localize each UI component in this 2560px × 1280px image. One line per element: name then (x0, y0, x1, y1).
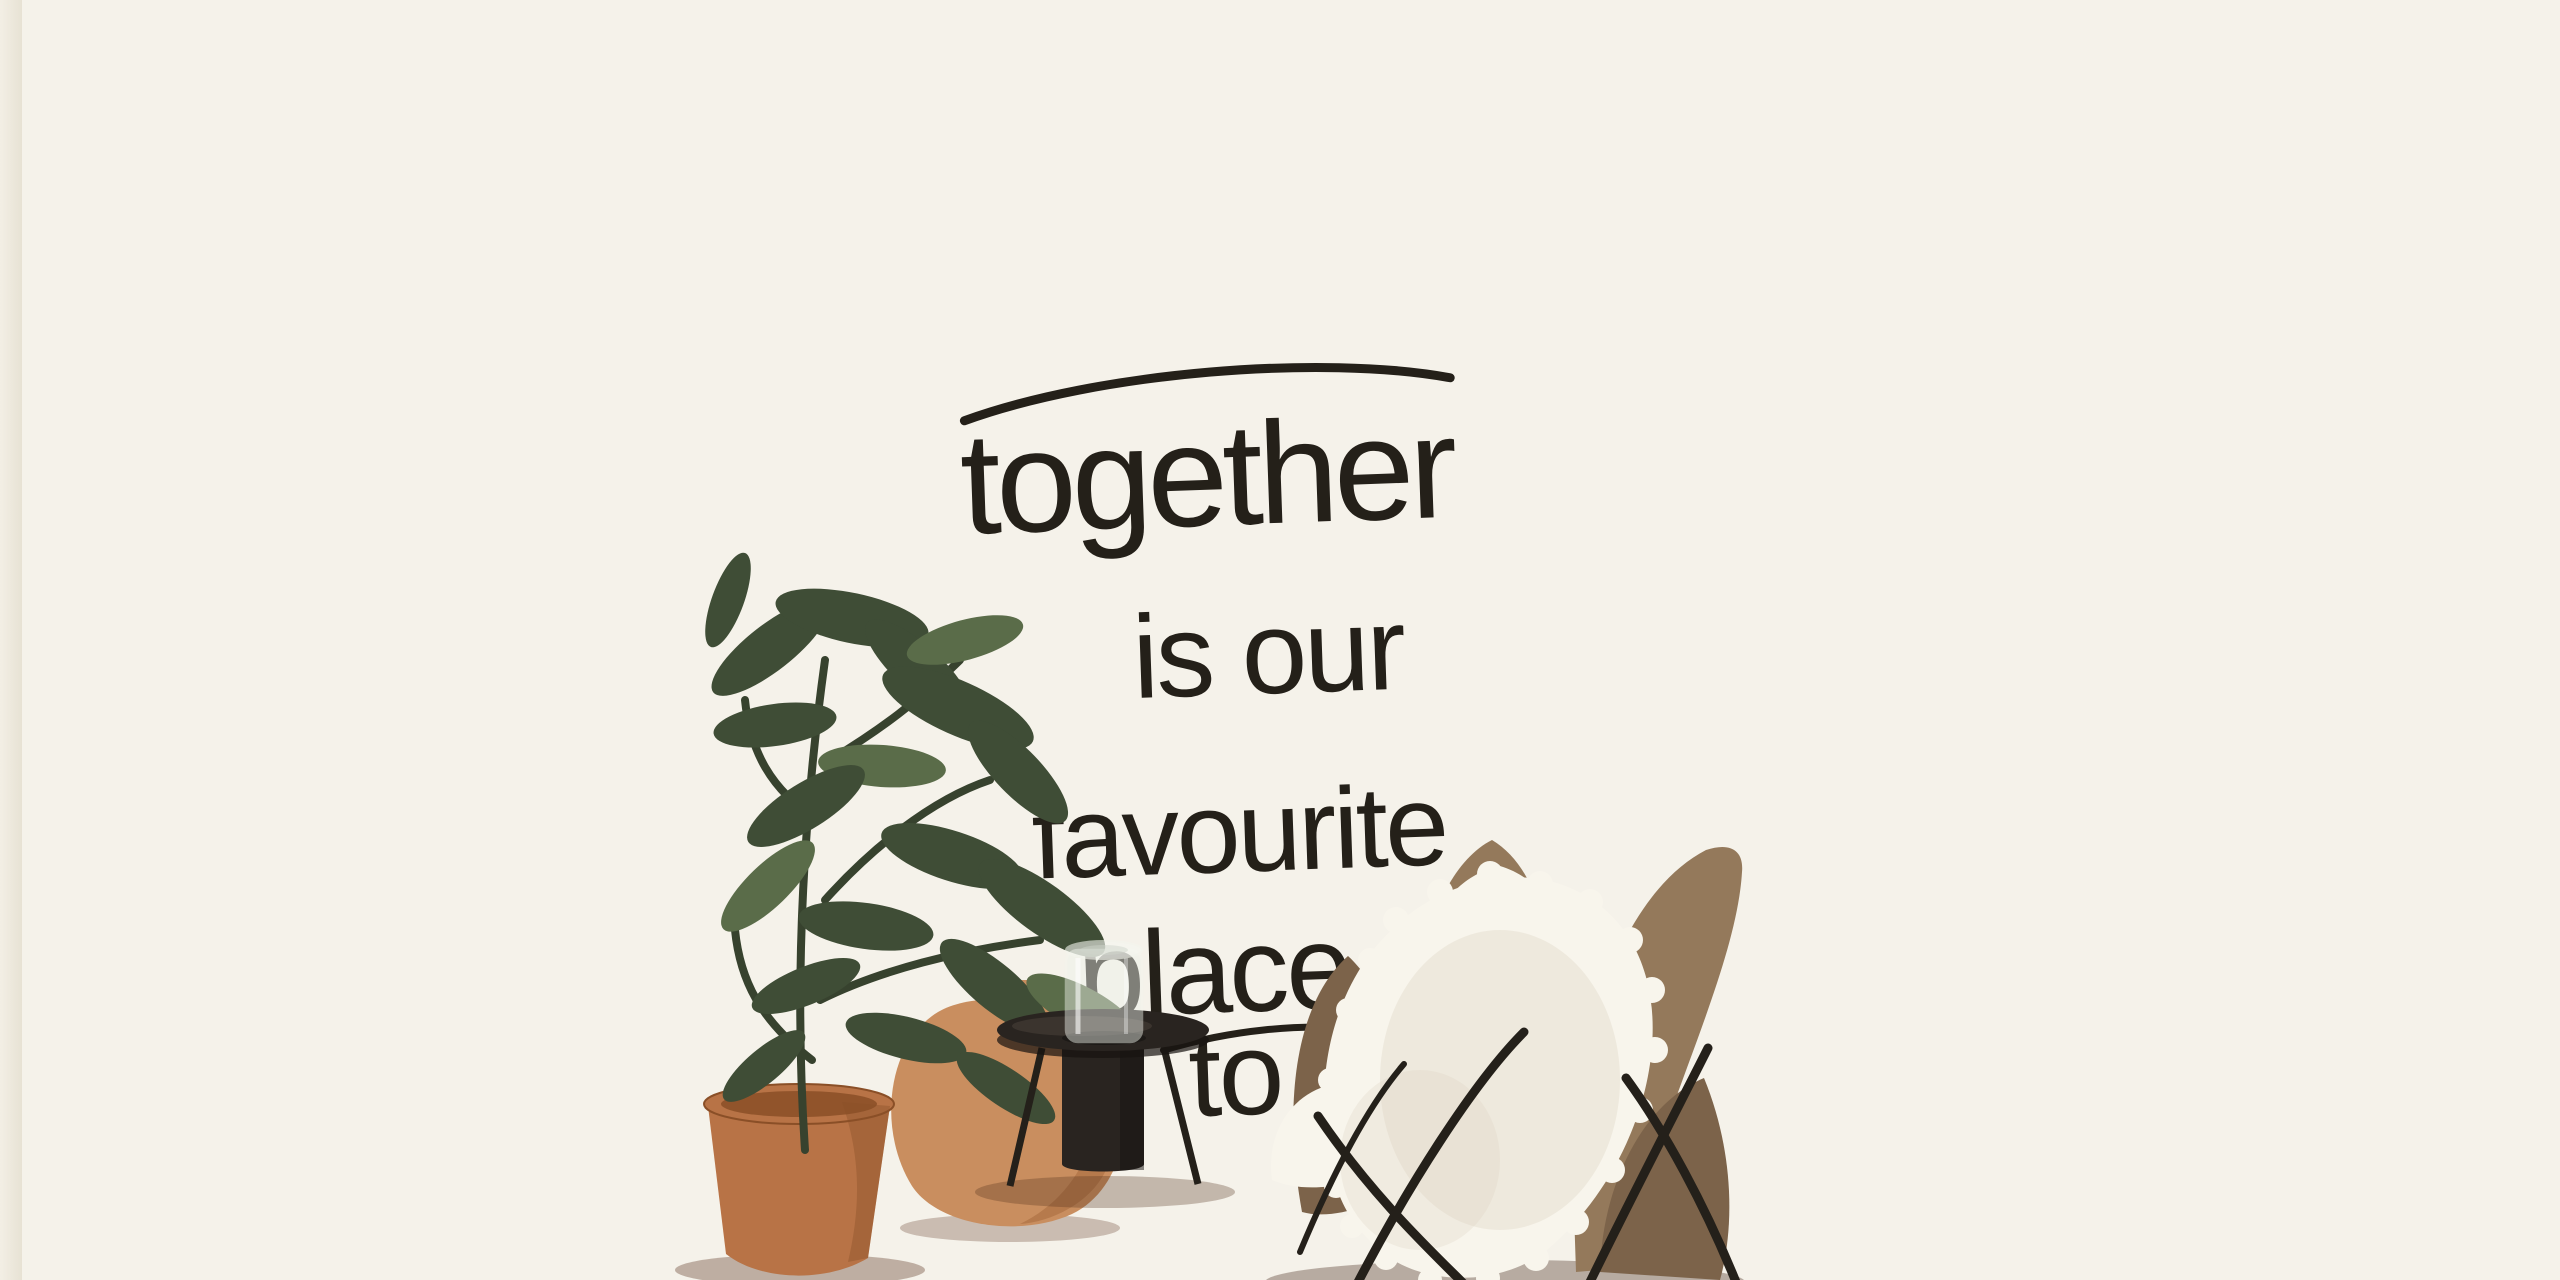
plant-leaf (795, 894, 936, 958)
quote-line-3: favourite (1030, 761, 1448, 903)
quote-line-2: is our (1130, 583, 1407, 724)
sheepskin-shading (1340, 1070, 1500, 1250)
vase-mouth (1080, 945, 1128, 955)
quote-line-1: together (958, 386, 1458, 565)
glass-vase (1062, 941, 1146, 1045)
table-pedestal-shade (1120, 1038, 1144, 1170)
scene-objects: together is our favourite place to be (0, 0, 2560, 1280)
interior-photo: together is our favourite place to be (0, 0, 2560, 1280)
